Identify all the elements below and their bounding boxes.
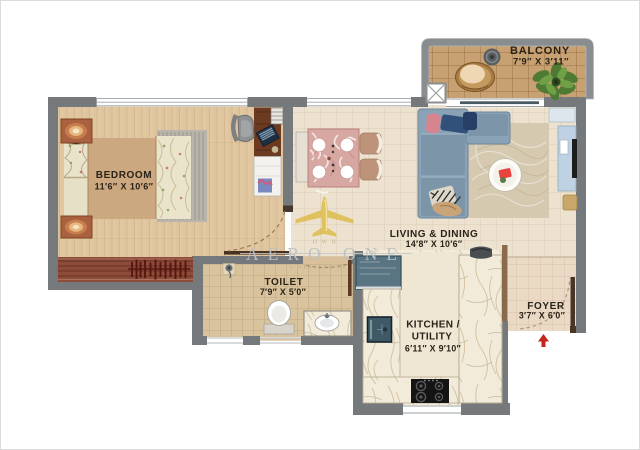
svg-text:11′6″ X 10′6″: 11′6″ X 10′6″ bbox=[95, 182, 154, 192]
svg-text:KITCHEN /: KITCHEN / bbox=[406, 320, 460, 331]
svg-text:A · V E N T U R E · O F · H W: A · V E N T U R E · O F · H W H · G R O … bbox=[290, 265, 397, 270]
svg-text:BEDROOM: BEDROOM bbox=[96, 170, 152, 181]
svg-text:3′7″ X 6′0″: 3′7″ X 6′0″ bbox=[519, 311, 566, 321]
svg-text:UTILITY: UTILITY bbox=[412, 332, 453, 343]
svg-text:14′8″ X 10′6″: 14′8″ X 10′6″ bbox=[406, 239, 463, 249]
svg-text:7′9″ X 5′0″: 7′9″ X 5′0″ bbox=[260, 287, 307, 297]
svg-text:AERO ONE: AERO ONE bbox=[246, 244, 406, 264]
svg-text:BALCONY: BALCONY bbox=[510, 45, 570, 57]
svg-text:6′11″ X 9′10″: 6′11″ X 9′10″ bbox=[405, 344, 462, 354]
svg-text:7′9″ X 3′11″: 7′9″ X 3′11″ bbox=[513, 57, 569, 68]
